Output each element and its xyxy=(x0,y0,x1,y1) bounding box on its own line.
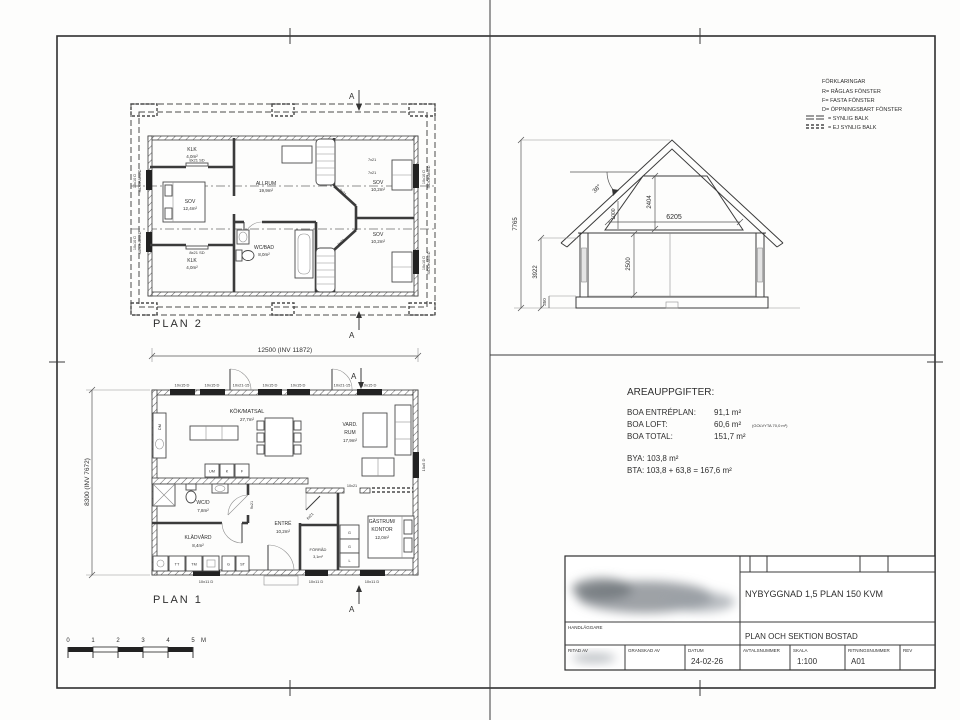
legend-item: D= ÖPPNINGSBART FÖNSTER xyxy=(822,106,902,113)
area-title: AREAUPPGIFTER: xyxy=(627,387,714,398)
window-label: 10x11 D xyxy=(365,579,380,584)
window-label: SIDOHÄNGD xyxy=(427,251,431,274)
handlaggare-label: HANDLÄGGARE xyxy=(568,624,603,630)
room-name: VARD. xyxy=(343,422,358,428)
window-label: SIDOHÄNGD xyxy=(138,169,142,192)
ritad-av-label: RITAD AV xyxy=(568,648,588,653)
legend-item: R= RÅGLAS FÖNSTER xyxy=(822,88,881,95)
rev-label: REV xyxy=(903,648,912,653)
window-label: 10x5 D xyxy=(421,459,426,472)
loft-stair-top xyxy=(316,139,335,185)
section-marker-top: A xyxy=(351,368,364,389)
room-area: 12,4m² xyxy=(183,206,198,211)
section-dimensions: 6205 1000 2404 2500 3922 7765 350 38° xyxy=(513,137,743,311)
legend: FÖRKLARINGAR R= RÅGLAS FÖNSTER F= FASTA … xyxy=(806,78,902,131)
door-label: 10x21-15 xyxy=(334,383,351,388)
room-name: SOV xyxy=(373,232,384,238)
dim-knee: 1000 xyxy=(611,208,617,219)
area-extra: BTA: 103,8 + 63,8 = 167,6 m² xyxy=(627,466,732,475)
room-area: 8,0m² xyxy=(258,252,270,257)
dim-plinth: 350 xyxy=(542,298,547,306)
appliance-label: K xyxy=(226,470,229,474)
section-marker-letter: A xyxy=(349,331,355,340)
window-label: SIDOHÄNGD xyxy=(427,165,431,188)
window-label: 10x15 D xyxy=(205,383,220,388)
room-name: KONTOR xyxy=(371,527,393,533)
scale-tick-label: 4 xyxy=(166,638,170,644)
dim-total-height: 7765 xyxy=(513,217,519,231)
room-name: SOV xyxy=(373,180,384,186)
ritningsnummer-value: A01 xyxy=(851,657,866,666)
dim-floor-height: 2500 xyxy=(626,257,632,271)
legend-item: = EJ SYNLIG BALK xyxy=(828,125,877,131)
room-area: 4,0m² xyxy=(186,265,198,270)
area-note: (GOLVYTA 70,0 m²) xyxy=(752,423,788,428)
plan-1-drawing: 12500 (INV 11872) 8300 (INV 7672) 10x15 … xyxy=(84,347,426,614)
door-label: 8x21 SD xyxy=(189,250,204,255)
kitchen-fixtures: DM UM K F xyxy=(153,413,301,477)
drawing-title: PLAN OCH SEKTION BOSTAD xyxy=(745,632,858,641)
area-extra: BYA: 103,8 m² xyxy=(627,454,679,463)
section-drawing: 6205 1000 2404 2500 3922 7765 350 38° xyxy=(513,137,800,311)
plan-2-drawing: KLK 4,0m² SOV 12,4m² ALLRUM 19,9m² SOV 1… xyxy=(131,90,435,340)
scale-unit: M xyxy=(201,638,206,644)
window-label: 10x15 D xyxy=(175,383,190,388)
window-label: 10x10 D xyxy=(133,174,137,188)
area-summary: AREAUPPGIFTER: BOA ENTRÉPLAN: 91,1 m² BO… xyxy=(627,387,788,475)
section-marker-letter: A xyxy=(351,372,357,381)
scale-bar: 0 1 2 3 4 5 M xyxy=(66,638,206,658)
plan1-top-window-labels: 10x15 D 10x15 D 10x21-15 10x15 D 10x15 D… xyxy=(175,383,377,388)
project-title: NYBYGGNAD 1,5 PLAN 150 KVM xyxy=(745,589,883,599)
room-area: 27,7m² xyxy=(240,417,255,422)
area-value: 151,7 m² xyxy=(714,432,746,441)
redacted-signature xyxy=(572,653,616,663)
room-area: 12,0m² xyxy=(375,535,390,540)
door-label: 8x21 SD xyxy=(189,158,204,163)
window-label: 10x10 D xyxy=(133,236,137,250)
closet-label: G xyxy=(348,531,351,535)
scale-tick-label: 2 xyxy=(116,638,120,644)
door-label: 10x21 xyxy=(347,484,357,488)
room-name: KLK xyxy=(187,147,197,153)
dim-loft-height: 2404 xyxy=(647,195,653,209)
skala-value: 1:100 xyxy=(797,657,818,666)
window-label: 10x15 D xyxy=(263,383,278,388)
dim-wall-height: 3922 xyxy=(533,265,539,279)
room-name: RUM xyxy=(344,430,355,436)
room-area: 8,4m² xyxy=(192,543,204,548)
room-name: FÖRRÅD xyxy=(310,547,327,552)
area-value: 60,6 m² xyxy=(714,420,741,429)
datum-value: 24-02-26 xyxy=(691,657,724,666)
window-label: 10x15 D xyxy=(291,383,306,388)
room-area: 10,2m² xyxy=(371,187,386,192)
window-label: 10x10 D xyxy=(422,170,426,184)
scale-tick-label: 0 xyxy=(66,638,70,644)
plan2-title: PLAN 2 xyxy=(153,318,203,330)
laundry-fixtures: TT TM G ST xyxy=(153,556,249,571)
window-label: 10x11 D xyxy=(309,579,324,584)
appliance-label: TT xyxy=(175,563,180,567)
legend-item: = SYNLIG BALK xyxy=(828,116,869,122)
title-block: HANDLÄGGARE RITAD AV GRANSKAD AV DATUM 2… xyxy=(565,556,935,670)
appliance-label: G xyxy=(227,563,230,567)
room-area: 17,9m² xyxy=(343,438,358,443)
dim-plan1-width: 12500 (INV 11872) xyxy=(258,347,312,354)
appliance-label: UM xyxy=(209,470,215,474)
window-label: SIDOHÄNGD xyxy=(138,231,142,254)
visible-beam-symbol xyxy=(806,116,824,119)
room-area: 10,2m² xyxy=(276,529,291,534)
legend-title: FÖRKLARINGAR xyxy=(822,78,865,85)
window-label: 10x11 D xyxy=(199,579,214,584)
appliance-label: DM xyxy=(158,424,162,430)
door-label: 7x21 xyxy=(368,171,376,175)
loft-stair-bottom xyxy=(316,248,335,292)
area-value: 91,1 m² xyxy=(714,408,741,417)
window-label: 10x10 D xyxy=(422,256,426,270)
closet-label: L xyxy=(348,559,350,563)
room-area: 10,2m² xyxy=(371,239,386,244)
appliance-label: ST xyxy=(240,563,246,567)
dim-plan1-depth: 8300 (INV 7672) xyxy=(84,458,91,506)
door-label: 9x21 xyxy=(250,501,254,509)
skala-label: SKALA xyxy=(793,648,808,653)
hidden-beam-symbol xyxy=(806,125,824,128)
avtalsnummer-label: AVTALSNUMMER xyxy=(743,648,781,653)
room-name: KÖK/MATSAL xyxy=(230,408,265,415)
section-marker-letter: A xyxy=(349,605,355,614)
appliance-label: TM xyxy=(191,563,196,567)
room-name: GÄSTRUM/ xyxy=(369,518,396,525)
closet-label: G xyxy=(348,545,351,549)
plan1-title: PLAN 1 xyxy=(153,594,203,606)
area-label: BOA LOFT: xyxy=(627,420,667,429)
section-marker-bottom: A xyxy=(349,585,362,614)
room-name: ALLRUM xyxy=(256,181,276,187)
bathroom-fixtures xyxy=(153,484,228,506)
room-name: SOV xyxy=(185,199,196,205)
door-label: 7x21 xyxy=(368,158,376,162)
room-name: WC/D xyxy=(196,500,210,506)
room-area: 7,8m² xyxy=(197,508,209,513)
door-label: 10x21-15 xyxy=(233,383,250,388)
datum-label: DATUM xyxy=(688,648,704,653)
scale-tick-label: 5 xyxy=(191,638,195,644)
room-area: 3,1m² xyxy=(313,555,323,559)
drawing-sheet: FÖRKLARINGAR R= RÅGLAS FÖNSTER F= FASTA … xyxy=(0,0,960,720)
scale-tick-label: 3 xyxy=(141,638,145,644)
ritningsnummer-label: RITNINGSNUMMER xyxy=(848,648,890,653)
room-area: 19,9m² xyxy=(259,188,274,193)
room-name: KLÄDVÅRD xyxy=(185,534,212,541)
granskad-av-label: GRANSKAD AV xyxy=(628,648,660,653)
door-label: 6x21 xyxy=(306,512,315,521)
section-marker-letter: A xyxy=(349,92,355,101)
dim-roof-angle: 38° xyxy=(592,184,603,195)
room-name: KLK xyxy=(187,258,197,264)
room-name: WC/BAD xyxy=(254,245,274,251)
section-marker-top: A xyxy=(349,90,362,111)
legend-item: F= FASTA FÖNSTER xyxy=(822,97,875,104)
area-label: BOA TOTAL: xyxy=(627,432,673,441)
scale-tick-label: 1 xyxy=(91,638,95,644)
dim-loft-width: 6205 xyxy=(666,214,682,221)
room-name: ENTRÉ xyxy=(275,520,293,527)
window-label: 10x15 D xyxy=(362,383,377,388)
area-label: BOA ENTRÉPLAN: xyxy=(627,408,696,417)
